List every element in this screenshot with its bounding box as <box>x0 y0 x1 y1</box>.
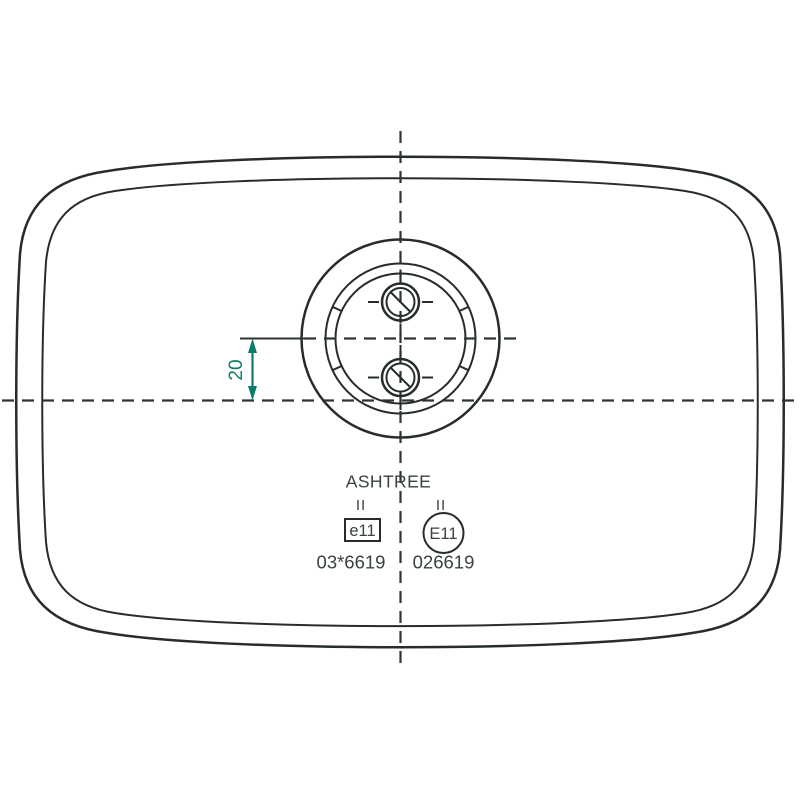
brand-text: ASHTREE <box>346 472 431 492</box>
bayonet-notch-bottom-right <box>459 366 468 370</box>
bayonet-notch-top-left <box>333 307 342 311</box>
dimension-value: 20 <box>226 359 247 380</box>
e-mark-label: e11 <box>349 522 375 540</box>
e-mark-number: 03*6619 <box>317 552 386 573</box>
right-class-mark: II <box>436 497 446 514</box>
housing-drawing-canvas: 20 ASHTREE II e11 03*6619 II E11 026619 <box>0 0 800 800</box>
E-mark-number: 026619 <box>413 552 475 573</box>
dimension-arrowhead-up <box>248 339 257 354</box>
bayonet-notch-bottom-left <box>333 366 342 370</box>
approval-markings: ASHTREE II e11 03*6619 II E11 026619 <box>317 472 475 573</box>
bayonet-notch-top-right <box>459 307 468 311</box>
screw-top <box>368 270 433 335</box>
screw-bottom-slash <box>391 368 411 388</box>
dimension-20: 20 <box>226 339 257 401</box>
technical-drawing-page: 20 ASHTREE II e11 03*6619 II E11 026619 <box>0 0 800 800</box>
E-mark-label: E11 <box>429 525 457 543</box>
dimension-arrowhead-down <box>248 386 257 401</box>
left-class-mark: II <box>356 497 366 514</box>
